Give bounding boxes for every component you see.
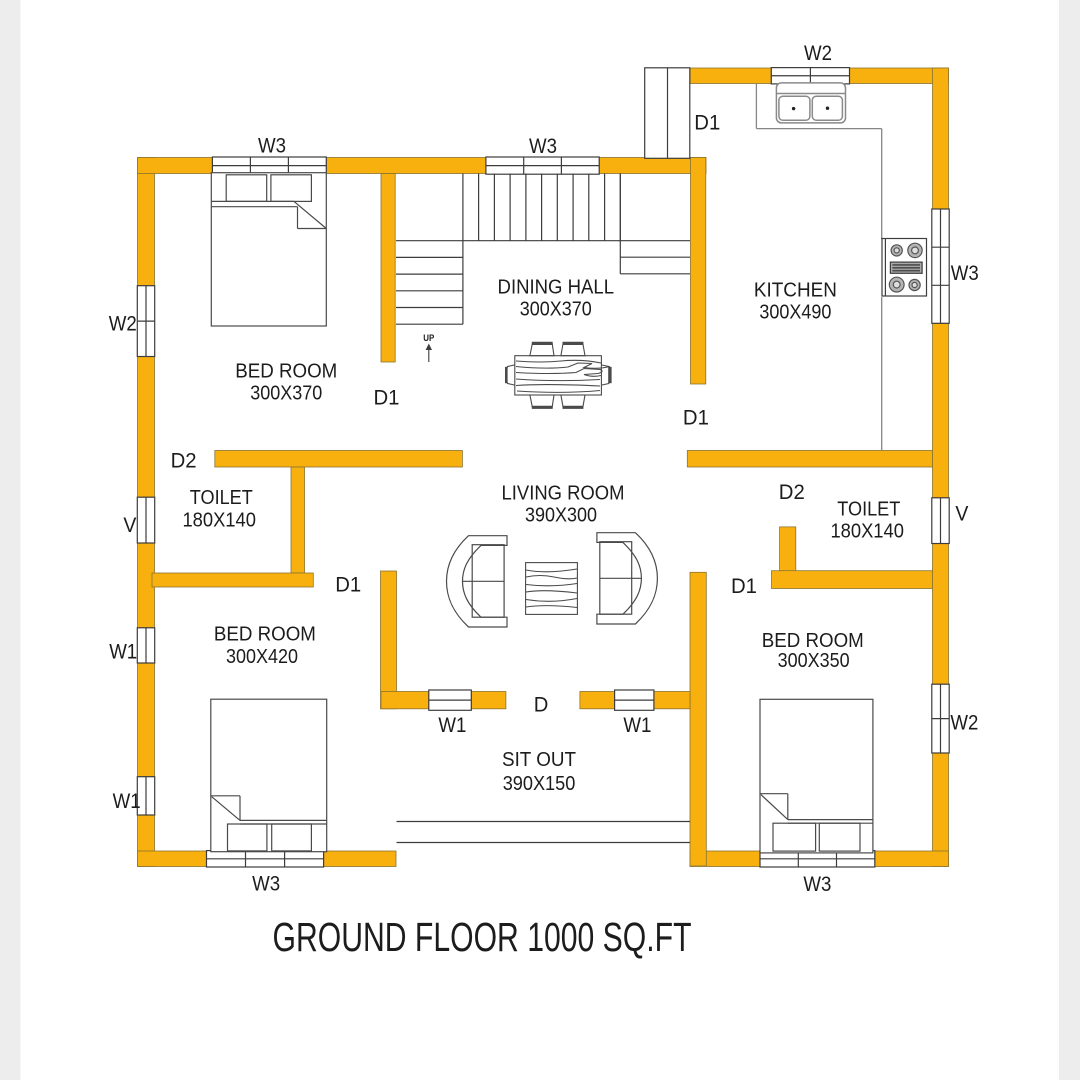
svg-text:W2: W2 — [804, 42, 832, 65]
svg-text:D: D — [534, 694, 549, 717]
svg-text:D1: D1 — [731, 575, 757, 598]
svg-text:DINING HALL: DINING HALL — [498, 277, 615, 299]
svg-text:300X420: 300X420 — [226, 646, 298, 668]
svg-text:SIT OUT: SIT OUT — [502, 749, 576, 771]
svg-text:180X140: 180X140 — [182, 510, 256, 532]
svg-text:GROUND FLOOR 1000 SQ.FT: GROUND FLOOR 1000 SQ.FT — [273, 914, 692, 960]
svg-text:W3: W3 — [803, 873, 831, 896]
svg-text:D1: D1 — [374, 387, 400, 410]
svg-text:KITCHEN: KITCHEN — [754, 280, 837, 302]
svg-text:W1: W1 — [113, 790, 141, 813]
svg-text:LIVING ROOM: LIVING ROOM — [502, 483, 625, 505]
svg-text:300X370: 300X370 — [520, 299, 592, 321]
svg-text:D2: D2 — [171, 450, 197, 473]
svg-text:V: V — [955, 503, 968, 526]
svg-text:390X300: 390X300 — [525, 505, 597, 527]
svg-text:W3: W3 — [252, 873, 280, 896]
svg-text:TOILET: TOILET — [837, 499, 900, 521]
svg-text:W1: W1 — [438, 714, 466, 737]
svg-text:W2: W2 — [950, 712, 978, 735]
svg-text:300X350: 300X350 — [778, 650, 850, 672]
svg-text:W1: W1 — [623, 714, 651, 737]
svg-text:W1: W1 — [109, 641, 137, 664]
svg-text:300X490: 300X490 — [759, 302, 831, 324]
svg-text:BED ROOM: BED ROOM — [235, 360, 337, 382]
svg-text:BED ROOM: BED ROOM — [214, 624, 316, 646]
svg-text:300X370: 300X370 — [250, 382, 322, 404]
svg-text:D1: D1 — [694, 111, 720, 134]
svg-text:V: V — [123, 514, 136, 537]
svg-text:W3: W3 — [529, 135, 557, 158]
svg-text:BED ROOM: BED ROOM — [762, 630, 864, 652]
svg-text:D2: D2 — [779, 481, 805, 504]
svg-text:180X140: 180X140 — [830, 521, 904, 543]
svg-text:TOILET: TOILET — [190, 487, 253, 509]
svg-text:UP: UP — [423, 333, 435, 344]
svg-text:W3: W3 — [951, 262, 979, 285]
svg-text:W2: W2 — [109, 313, 137, 336]
svg-text:390X150: 390X150 — [503, 773, 576, 795]
svg-text:D1: D1 — [335, 574, 361, 597]
svg-text:W3: W3 — [258, 135, 286, 158]
svg-text:D1: D1 — [683, 407, 709, 430]
